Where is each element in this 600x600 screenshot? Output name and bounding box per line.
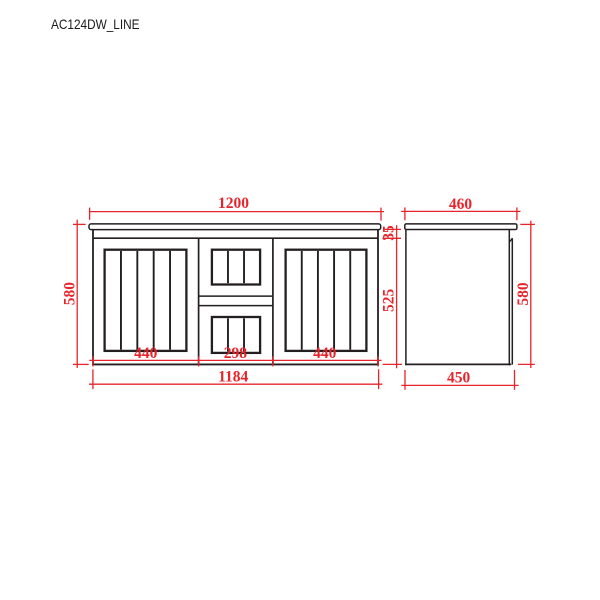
svg-text:AC124DW_LINE: AC124DW_LINE xyxy=(51,17,140,32)
svg-text:580: 580 xyxy=(61,282,78,306)
svg-text:525: 525 xyxy=(381,289,398,313)
svg-text:440: 440 xyxy=(313,345,337,362)
svg-text:460: 460 xyxy=(449,196,473,213)
svg-text:580: 580 xyxy=(515,282,532,306)
svg-text:298: 298 xyxy=(224,345,248,362)
svg-text:450: 450 xyxy=(447,369,471,386)
svg-text:35: 35 xyxy=(381,225,398,241)
svg-text:1200: 1200 xyxy=(218,195,249,212)
svg-text:1184: 1184 xyxy=(218,369,248,386)
svg-text:440: 440 xyxy=(134,345,158,362)
